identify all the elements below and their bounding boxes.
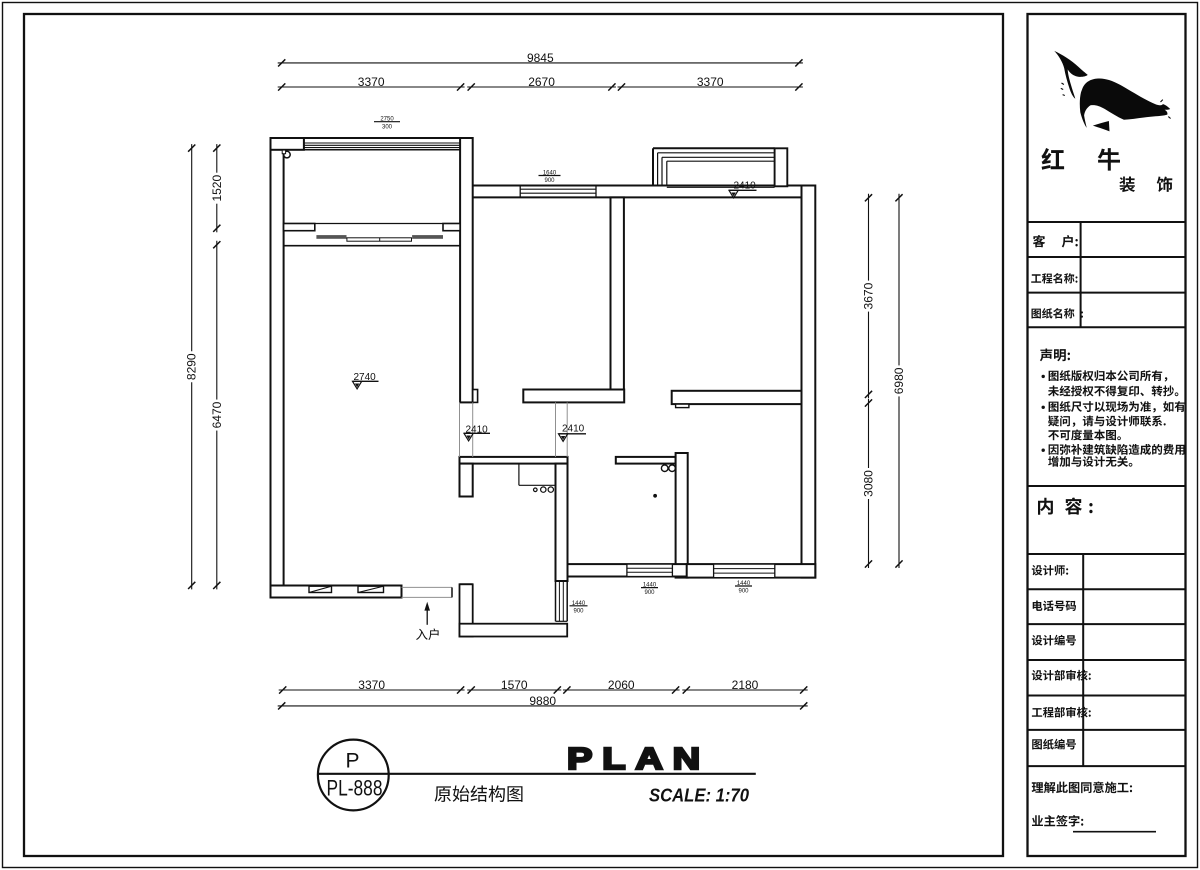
svg-text:6470: 6470 bbox=[210, 401, 224, 428]
svg-text:300: 300 bbox=[382, 124, 393, 130]
svg-text:3370: 3370 bbox=[358, 75, 385, 89]
svg-text:9845: 9845 bbox=[527, 51, 554, 65]
svg-text:900: 900 bbox=[644, 590, 655, 596]
svg-text:PL-888: PL-888 bbox=[327, 776, 383, 801]
svg-text:2740: 2740 bbox=[354, 372, 377, 383]
svg-text:8290: 8290 bbox=[185, 353, 199, 380]
svg-text:2750: 2750 bbox=[380, 116, 394, 122]
svg-text:3670: 3670 bbox=[862, 282, 876, 309]
svg-text:2410: 2410 bbox=[734, 181, 757, 192]
svg-text:2180: 2180 bbox=[732, 678, 759, 692]
svg-text:1640: 1640 bbox=[543, 170, 557, 176]
svg-text:2670: 2670 bbox=[528, 75, 555, 89]
svg-text:900: 900 bbox=[738, 589, 749, 595]
svg-text:3370: 3370 bbox=[358, 678, 385, 692]
svg-text:1570: 1570 bbox=[501, 678, 528, 692]
svg-text:6980: 6980 bbox=[892, 367, 906, 394]
svg-text:1440: 1440 bbox=[572, 601, 586, 607]
svg-text:900: 900 bbox=[544, 178, 555, 184]
svg-text:2410: 2410 bbox=[466, 424, 489, 435]
svg-text:2060: 2060 bbox=[608, 678, 635, 692]
svg-text:3370: 3370 bbox=[697, 75, 724, 89]
svg-text:3080: 3080 bbox=[862, 470, 876, 497]
svg-text:2410: 2410 bbox=[562, 424, 585, 435]
svg-text:1520: 1520 bbox=[210, 175, 224, 202]
svg-text:PLAN: PLAN bbox=[567, 741, 710, 776]
svg-text:9880: 9880 bbox=[529, 694, 556, 708]
svg-text:P: P bbox=[345, 750, 359, 773]
svg-text:900: 900 bbox=[573, 608, 584, 614]
svg-text:1440: 1440 bbox=[643, 583, 657, 589]
svg-text:1440: 1440 bbox=[737, 581, 751, 587]
svg-text:SCALE: 1:70: SCALE: 1:70 bbox=[649, 785, 750, 806]
